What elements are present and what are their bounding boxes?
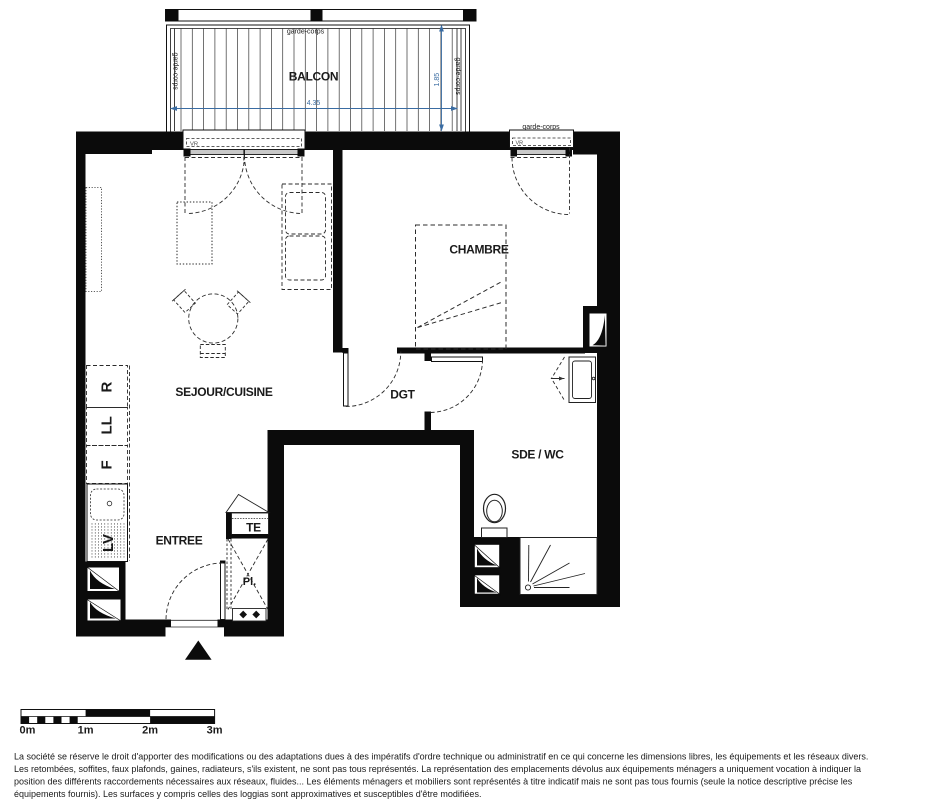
svg-text:4.35: 4.35 [307,100,321,107]
svg-text:0m: 0m [20,725,36,737]
svg-text:garde-corps: garde-corps [454,58,461,96]
svg-text:F: F [99,460,116,469]
svg-text:TE: TE [246,521,261,535]
svg-text:ENTREE: ENTREE [156,534,203,548]
svg-text:LV: LV [100,534,117,552]
svg-text:VR: VR [516,141,524,147]
svg-text:garde-corps: garde-corps [172,53,179,91]
svg-text:Pl.: Pl. [243,576,256,588]
svg-text:VR: VR [190,142,198,148]
svg-text:Les retombées, soffites, faux: Les retombées, soffites, faux plafonds, … [14,764,861,774]
svg-text:position des différents raccor: position des différents raccordements né… [14,777,853,787]
svg-text:R: R [99,382,116,393]
svg-text:CHAMBRE: CHAMBRE [449,243,509,257]
svg-text:1m: 1m [78,725,94,737]
svg-text:SDE / WC: SDE / WC [511,448,564,462]
svg-text:1.85: 1.85 [434,73,441,87]
svg-text:DGT: DGT [390,388,415,402]
svg-text:équipements fournis). Les surf: équipements fournis). Les surfaces y com… [14,789,481,799]
svg-text:2m: 2m [142,725,158,737]
svg-text:SEJOUR/CUISINE: SEJOUR/CUISINE [175,385,272,399]
svg-text:LL: LL [99,416,116,434]
svg-text:BALCON: BALCON [289,70,339,84]
svg-text:La société se réserve le droit: La société se réserve le droit d'apporte… [14,752,868,762]
svg-text:3m: 3m [207,725,223,737]
svg-text:garde-corps: garde-corps [287,29,325,36]
